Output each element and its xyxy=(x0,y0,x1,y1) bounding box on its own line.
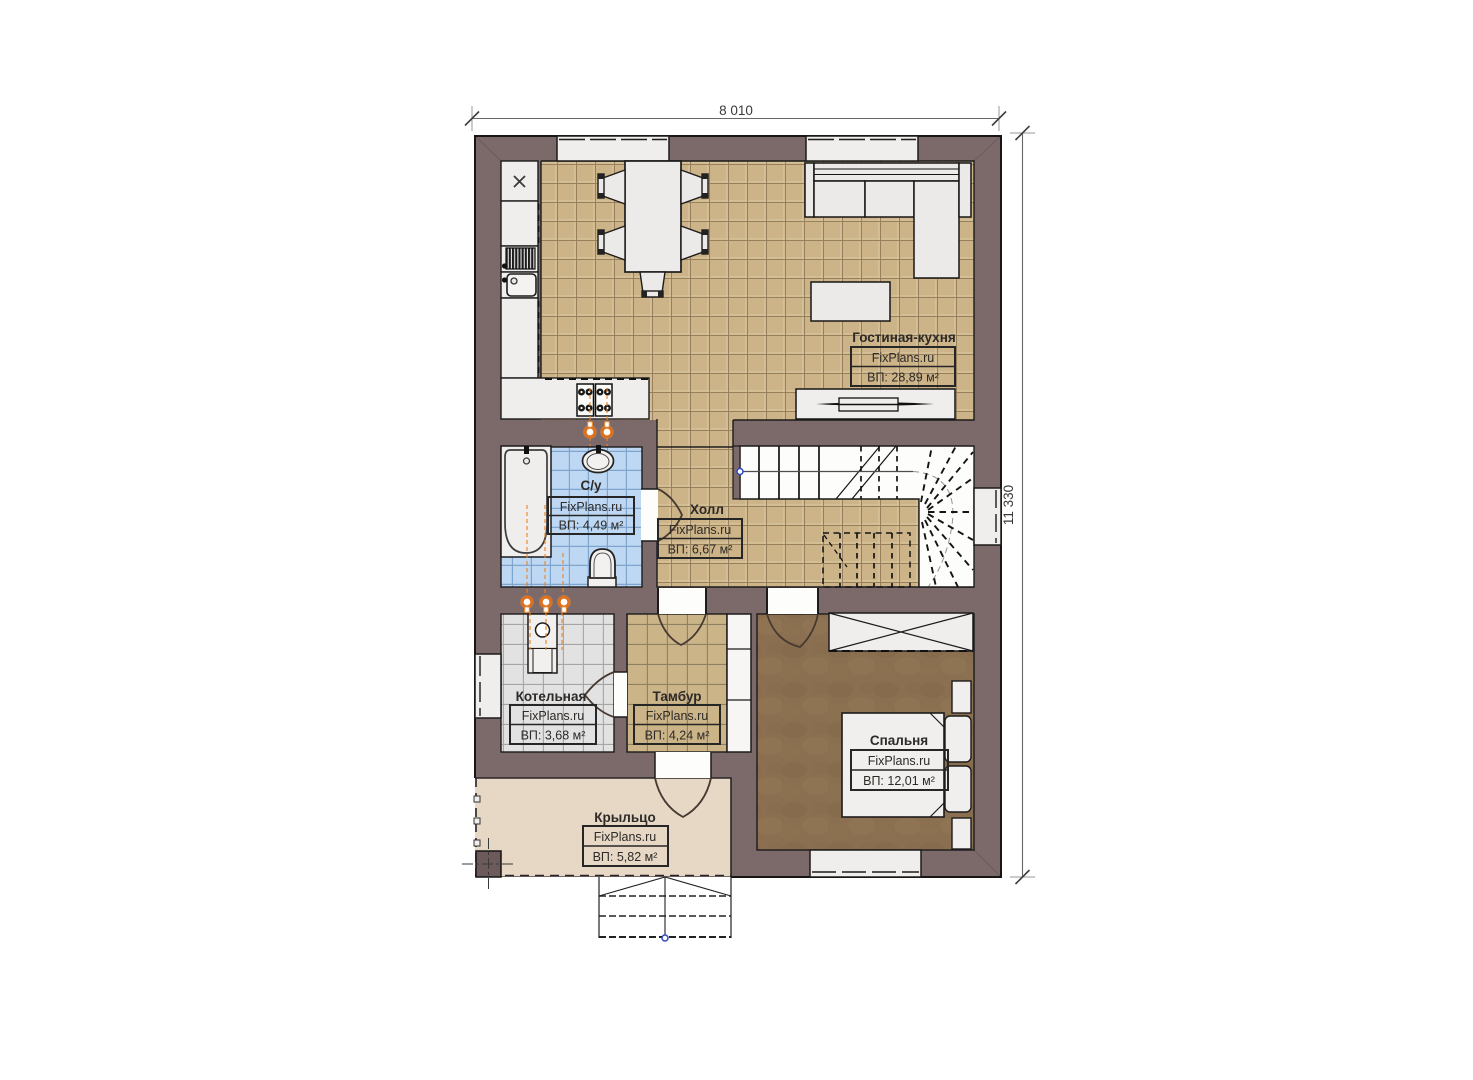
svg-text:11 330: 11 330 xyxy=(1001,485,1016,525)
svg-text:FixPlans.ru: FixPlans.ru xyxy=(594,830,657,844)
svg-text:ВП: 4,24 м²: ВП: 4,24 м² xyxy=(645,729,710,743)
svg-text:ВП: 28,89 м²: ВП: 28,89 м² xyxy=(867,371,939,385)
svg-text:Спальня: Спальня xyxy=(870,733,928,748)
svg-text:FixPlans.ru: FixPlans.ru xyxy=(522,709,585,723)
svg-text:ВП: 6,67 м²: ВП: 6,67 м² xyxy=(668,543,733,557)
svg-text:Гостиная-кухня: Гостиная-кухня xyxy=(852,330,955,345)
svg-text:FixPlans.ru: FixPlans.ru xyxy=(868,754,931,768)
svg-text:Котельная: Котельная xyxy=(516,689,587,704)
svg-text:Крыльцо: Крыльцо xyxy=(594,810,655,825)
svg-text:8 010: 8 010 xyxy=(719,103,753,118)
svg-text:FixPlans.ru: FixPlans.ru xyxy=(646,709,709,723)
svg-text:ВП: 5,82 м²: ВП: 5,82 м² xyxy=(593,850,658,864)
svg-text:ВП: 3,68 м²: ВП: 3,68 м² xyxy=(521,729,586,743)
svg-text:Холл: Холл xyxy=(690,502,724,517)
svg-text:FixPlans.ru: FixPlans.ru xyxy=(560,500,623,514)
svg-text:С/у: С/у xyxy=(580,478,602,493)
svg-text:FixPlans.ru: FixPlans.ru xyxy=(669,523,732,537)
svg-text:Тамбур: Тамбур xyxy=(653,689,702,704)
svg-text:ВП: 4,49 м²: ВП: 4,49 м² xyxy=(559,519,624,533)
svg-text:FixPlans.ru: FixPlans.ru xyxy=(872,351,935,365)
svg-text:ВП: 12,01 м²: ВП: 12,01 м² xyxy=(863,774,935,788)
